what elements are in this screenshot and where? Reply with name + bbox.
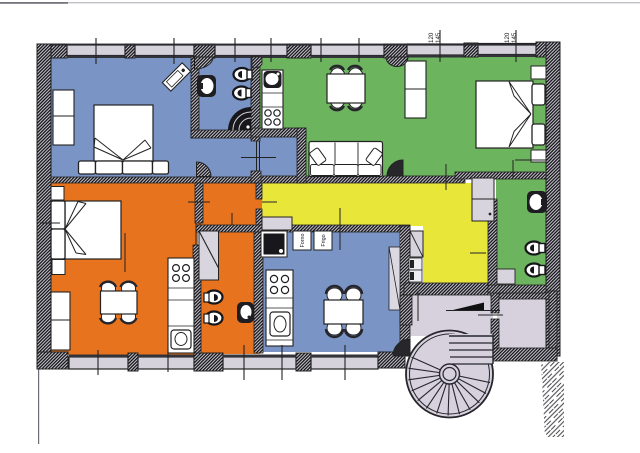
svg-text:Frigo: Frigo xyxy=(321,234,327,246)
svg-text:120: 120 xyxy=(504,32,511,43)
svg-text:145: 145 xyxy=(511,32,518,43)
svg-text:Forno: Forno xyxy=(300,233,306,247)
svg-text:120: 120 xyxy=(428,32,435,43)
svg-text:145: 145 xyxy=(435,32,442,43)
